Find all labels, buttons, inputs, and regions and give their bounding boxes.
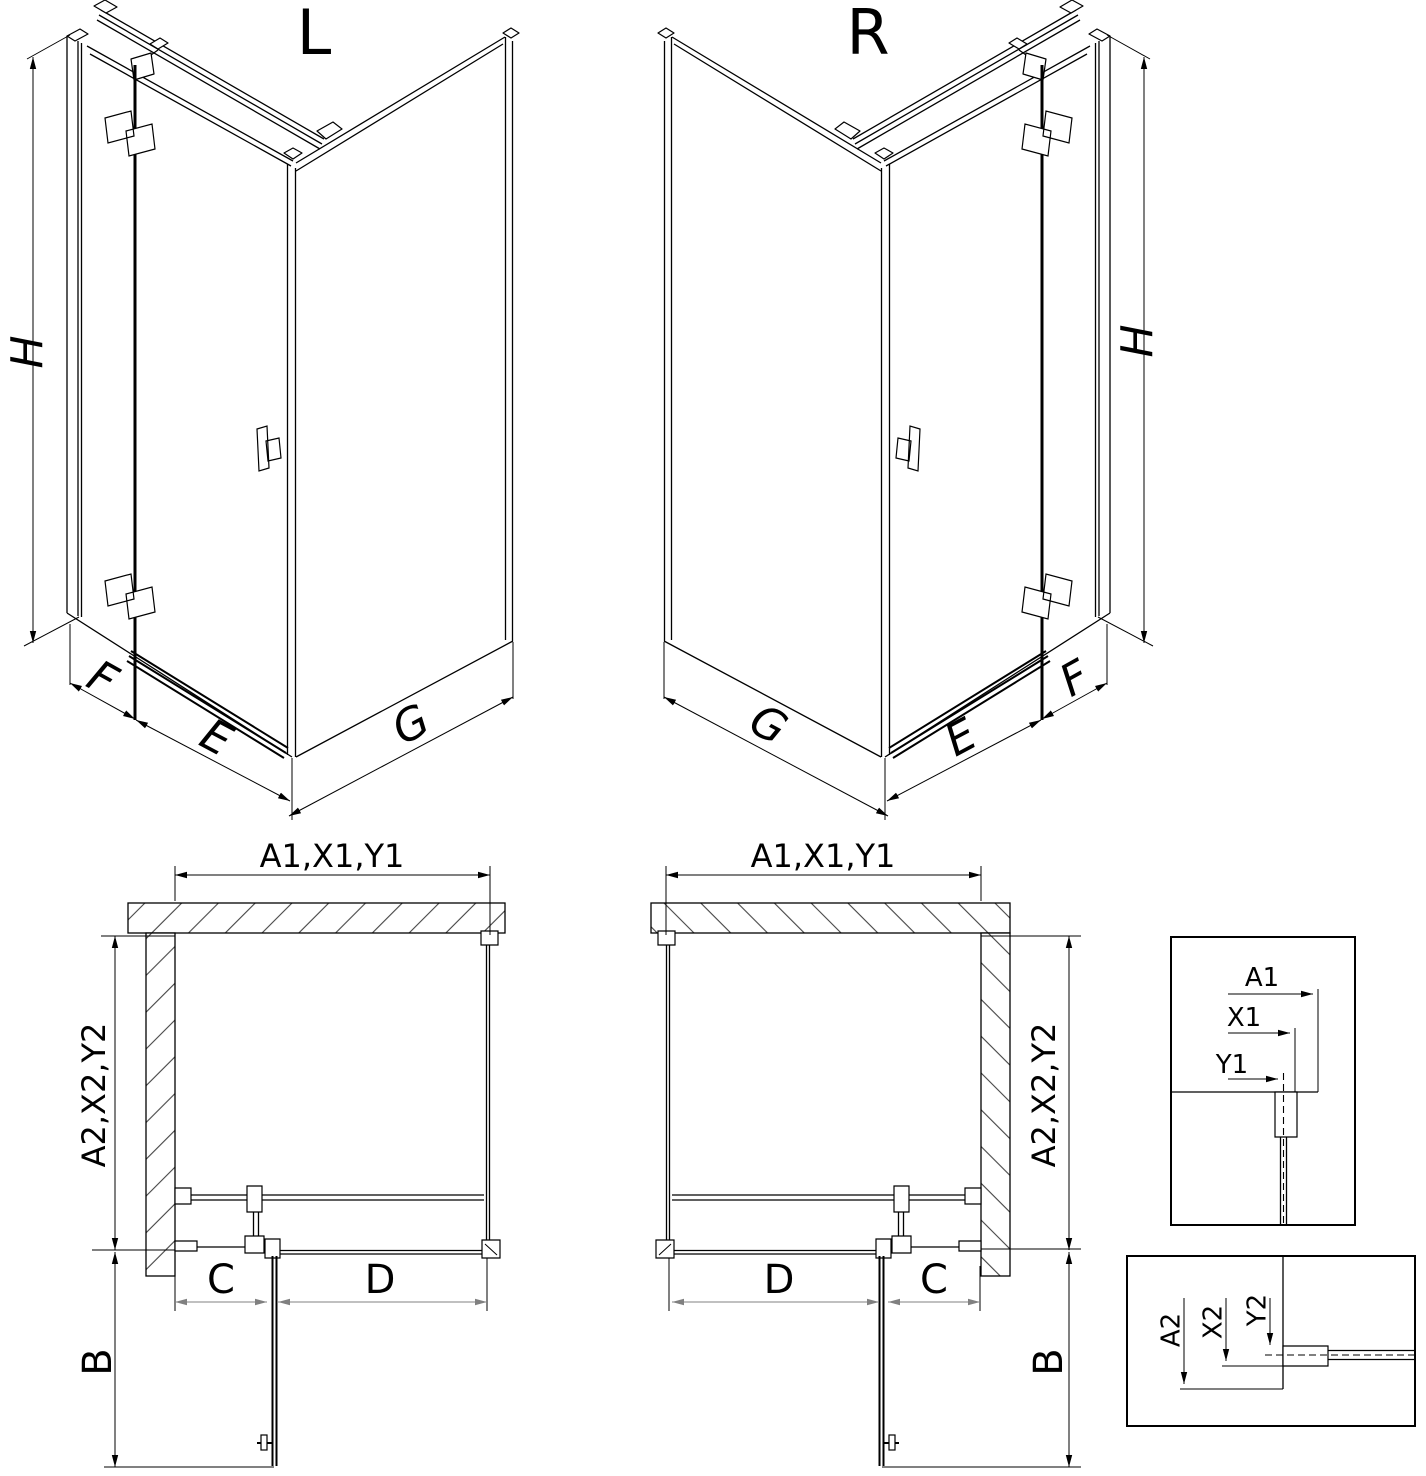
open-door-leaf (880, 1256, 884, 1466)
plan-view-left: A1,X1,Y1 A2,X2,Y2 B C D (75, 837, 505, 1467)
plan-right-c-label: C (920, 1257, 948, 1303)
reference-lines (1295, 989, 1318, 1092)
detail-depth-section: A2 X2 Y2 (1127, 1256, 1415, 1426)
shower-enclosure-dimension-diagram: L H F E G R H F E G A1,X1,Y1 A2,X2,Y2 B … (0, 0, 1426, 1476)
detail-x1-label: X1 (1227, 1003, 1261, 1033)
plan-left-c-label: C (207, 1257, 235, 1303)
iso-left-e-label: E (192, 709, 241, 767)
plan-right-d-label: D (764, 1257, 795, 1303)
wall-profile-section (1283, 1346, 1328, 1366)
detail-x2-label: X2 (1199, 1305, 1229, 1339)
iso-right-g-label: G (741, 694, 795, 755)
wall-top-hatched (128, 903, 505, 933)
wall-profile-section (1275, 1092, 1297, 1137)
hinges-and-handle (105, 111, 281, 619)
glass-and-braces (667, 935, 967, 1258)
brackets (175, 931, 500, 1258)
detail-y1-label: Y1 (1215, 1050, 1248, 1080)
door-handle-tab (261, 1435, 267, 1450)
plan-right-depth-dims: A2,X2,Y2 (1025, 1023, 1063, 1168)
door-handle-tab (889, 1435, 895, 1450)
plan-extension-lines (666, 866, 1081, 1467)
plan-view-right: A1,X1,Y1 A2,X2,Y2 B D C (651, 837, 1081, 1467)
detail-y2-label: Y2 (1243, 1294, 1273, 1327)
detail-a2-label: A2 (1157, 1313, 1187, 1347)
iso-left-height-label: H (2, 335, 53, 368)
wall-side-hatched (981, 933, 1010, 1276)
iso-left-f-label: F (79, 650, 126, 707)
wall-side-hatched (146, 933, 175, 1276)
iso-right-height-label: H (1112, 324, 1163, 357)
iso-left-title: L (297, 0, 332, 69)
iso-right-e-label: E (937, 709, 986, 767)
detail-a1-label: A1 (1245, 963, 1279, 993)
brackets (656, 931, 981, 1258)
iso-left-g-label: G (384, 694, 438, 755)
plan-right-width-dims: A1,X1,Y1 (751, 837, 896, 875)
iso-right-labels: R H F E G (741, 0, 1163, 767)
wall-top-hatched (651, 903, 1010, 933)
reference-lines (1180, 1366, 1283, 1389)
plan-left-b-label: B (75, 1348, 121, 1375)
plan-left-d-label: D (365, 1257, 396, 1303)
plan-left-width-dims: A1,X1,Y1 (260, 837, 405, 875)
iso-right-title: R (846, 0, 889, 69)
iso-right-f-label: F (1051, 650, 1098, 707)
detail-width-section: A1 X1 Y1 (1171, 937, 1355, 1225)
plan-left-depth-dims: A2,X2,Y2 (75, 1023, 113, 1168)
plan-right-b-label: B (1026, 1348, 1072, 1375)
glass-and-braces (190, 935, 490, 1258)
open-door-leaf (273, 1256, 277, 1466)
